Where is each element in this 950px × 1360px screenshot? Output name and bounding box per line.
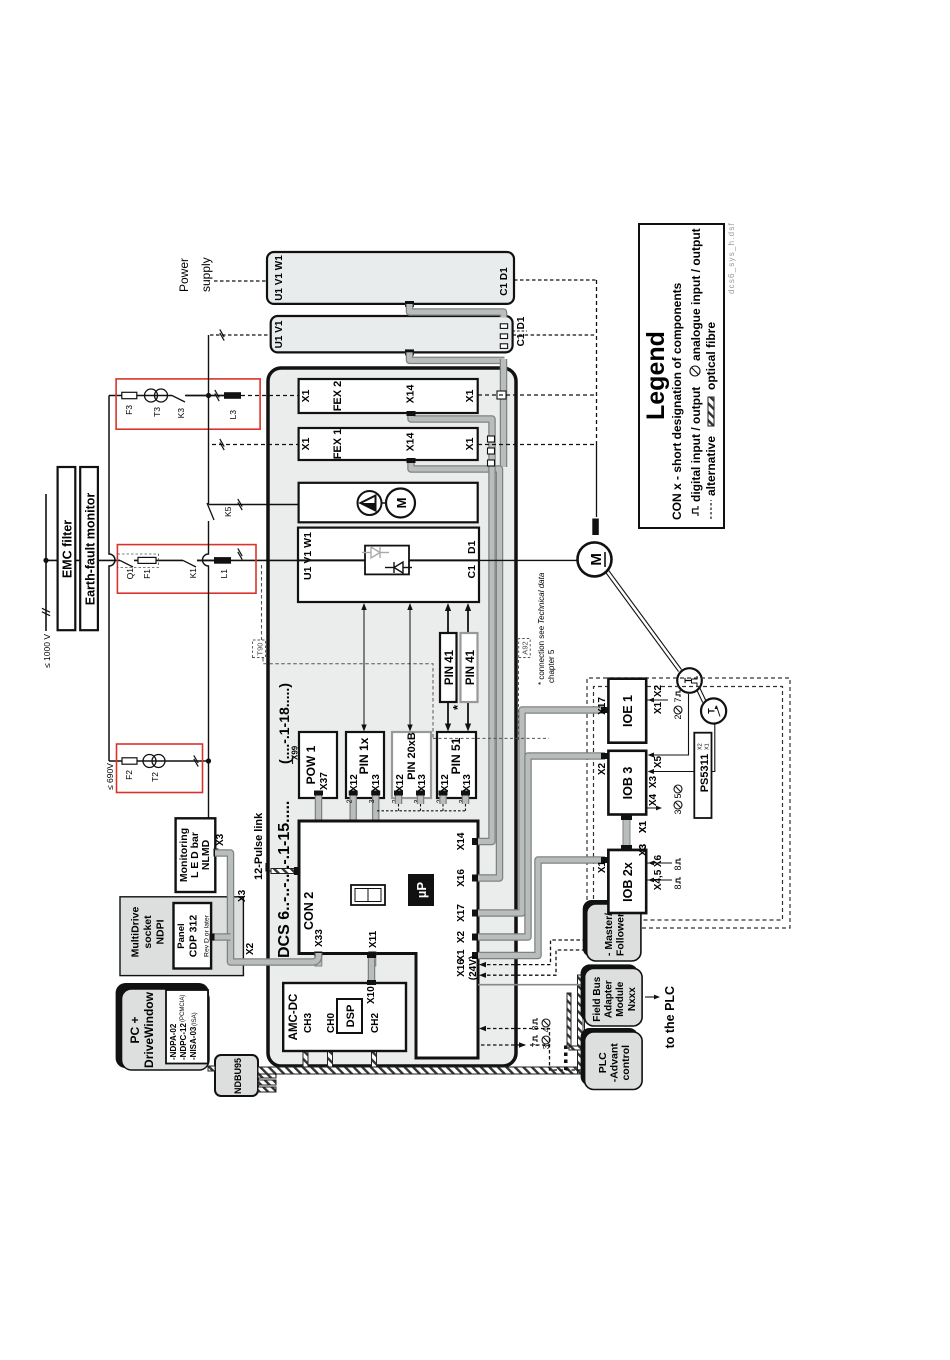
svg-text:CON x - short designation of c: CON x - short designation of components <box>670 282 684 520</box>
svg-text:T3: T3 <box>152 407 162 417</box>
svg-text:K1: K1 <box>188 568 198 579</box>
svg-text:C1: C1 <box>466 565 478 579</box>
svg-text:X13: X13 <box>417 774 428 792</box>
svg-text:≤ 1000 V: ≤ 1000 V <box>42 634 52 668</box>
svg-text:2: 2 <box>347 799 354 803</box>
svg-text:Earth-fault monitor: Earth-fault monitor <box>84 493 98 606</box>
svg-text:to the PLC: to the PLC <box>663 986 677 1049</box>
svg-text:12-Pulse link: 12-Pulse link <box>253 812 265 880</box>
svg-text:2: 2 <box>673 714 683 719</box>
svg-text:Panel: Panel <box>176 923 187 948</box>
svg-text:DCS 6..-..-....-.1-15.....: DCS 6..-..-....-.1-15..... <box>276 801 293 958</box>
svg-text:X16: X16 <box>456 959 467 977</box>
svg-text:Nxxx: Nxxx <box>627 987 638 1011</box>
svg-text:X17: X17 <box>456 904 467 922</box>
svg-text:X1: X1 <box>638 820 649 833</box>
svg-text:PIN 51: PIN 51 <box>449 737 463 774</box>
svg-text:X14: X14 <box>405 385 417 404</box>
svg-text:Adapter: Adapter <box>604 980 615 1018</box>
svg-text:CH3: CH3 <box>303 1013 314 1033</box>
svg-text:X4: X4 <box>648 793 659 806</box>
svg-text:dcs6_sys_h.dsf: dcs6_sys_h.dsf <box>727 222 736 294</box>
svg-text:X3: X3 <box>648 775 659 788</box>
svg-text:PIN 41: PIN 41 <box>444 649 456 685</box>
svg-text:X3: X3 <box>215 833 226 846</box>
svg-text:optical fibre: optical fibre <box>704 322 718 390</box>
svg-text:Technical data: Technical data <box>537 572 546 624</box>
svg-text:(ISA): (ISA) <box>192 1012 198 1026</box>
svg-text:Field Bus: Field Bus <box>592 976 603 1021</box>
svg-text:X2: X2 <box>597 762 608 775</box>
svg-text:CON 2: CON 2 <box>302 892 316 930</box>
svg-text:Legend: Legend <box>642 331 670 420</box>
svg-text:7: 7 <box>673 697 683 702</box>
svg-text:PC +: PC + <box>128 1016 142 1043</box>
svg-text:X12: X12 <box>395 774 406 792</box>
svg-text:PS5311: PS5311 <box>699 754 711 793</box>
svg-text:X2: X2 <box>456 930 467 943</box>
svg-text:X14: X14 <box>405 433 417 452</box>
svg-text:-NISA-03: -NISA-03 <box>189 1026 198 1060</box>
svg-text:8: 8 <box>673 865 683 870</box>
svg-text:3: 3 <box>369 799 376 803</box>
svg-text:(24V): (24V) <box>468 956 479 980</box>
svg-text:X2: X2 <box>245 942 256 955</box>
svg-text:3: 3 <box>673 809 683 814</box>
svg-text:U1 V1: U1 V1 <box>274 320 285 348</box>
svg-text:IOB 3: IOB 3 <box>621 767 635 800</box>
svg-text:8: 8 <box>530 1025 540 1030</box>
svg-text:X14: X14 <box>456 832 467 850</box>
svg-text:7: 7 <box>530 1042 540 1047</box>
svg-text:M: M <box>588 553 605 566</box>
svg-text:alternative: alternative <box>704 436 718 496</box>
svg-text:X1: X1 <box>464 389 476 402</box>
svg-text:X4,5: X4,5 <box>653 869 664 890</box>
svg-text:U1 V1 W1: U1 V1 W1 <box>302 532 314 580</box>
svg-text:≤ 690V: ≤ 690V <box>105 763 115 790</box>
svg-text:Rev D or later: Rev D or later <box>204 914 211 957</box>
svg-text:X1: X1 <box>597 860 608 873</box>
svg-text:-NDPC-12: -NDPC-12 <box>179 1023 188 1060</box>
svg-text:X1: X1 <box>300 437 312 450</box>
svg-text:X13: X13 <box>462 774 473 792</box>
svg-text:- Master/: - Master/ <box>603 913 615 956</box>
svg-text:U1 V1 W1: U1 V1 W1 <box>274 255 285 301</box>
svg-text:PIN 1x: PIN 1x <box>357 737 371 774</box>
svg-text:3: 3 <box>541 1044 551 1049</box>
svg-text:M: M <box>394 498 409 509</box>
svg-text:NDPI: NDPI <box>155 919 167 944</box>
svg-text:X3: X3 <box>638 843 649 856</box>
svg-text:-Advant: -Advant <box>608 1043 620 1083</box>
svg-text:CH0: CH0 <box>326 1013 337 1033</box>
svg-text:X1: X1 <box>653 701 664 714</box>
svg-text:F2: F2 <box>124 770 134 780</box>
svg-text:X2: X2 <box>698 743 704 750</box>
svg-text:supply: supply <box>199 257 213 292</box>
svg-text:X12: X12 <box>349 774 360 792</box>
svg-text:CH2: CH2 <box>370 1013 381 1033</box>
svg-text:digital input / output: digital input / output <box>689 387 703 502</box>
svg-text:X37: X37 <box>319 772 330 790</box>
svg-text:X3: X3 <box>237 889 248 902</box>
svg-text:POW 1: POW 1 <box>304 745 318 784</box>
svg-text:Q1: Q1 <box>125 568 135 580</box>
svg-text:CDP 312: CDP 312 <box>188 915 200 958</box>
svg-text:NDBU95: NDBU95 <box>233 1058 243 1094</box>
svg-text:EMC filter: EMC filter <box>61 520 75 578</box>
svg-text:AMC-DC: AMC-DC <box>288 994 300 1041</box>
svg-text:4: 4 <box>541 1027 551 1032</box>
svg-text:socket: socket <box>142 915 154 949</box>
svg-text:D1: D1 <box>466 540 478 554</box>
svg-text:L3: L3 <box>228 410 238 420</box>
svg-text:F1: F1 <box>142 569 152 579</box>
svg-text:X1: X1 <box>300 389 312 402</box>
svg-text:chapter 5: chapter 5 <box>547 649 556 683</box>
svg-text:control: control <box>620 1045 632 1081</box>
svg-text:analogue input / output: analogue input / output <box>689 228 703 361</box>
svg-text:X11: X11 <box>368 930 379 948</box>
svg-text:X5: X5 <box>653 755 664 768</box>
svg-text:(PCMCIA): (PCMCIA) <box>180 995 186 1022</box>
svg-text:X6: X6 <box>653 854 664 867</box>
svg-text:Follower: Follower <box>615 913 627 956</box>
svg-text:D1: D1 <box>516 316 527 329</box>
svg-text:IOE 1: IOE 1 <box>621 695 635 727</box>
svg-text:MultiDrive: MultiDrive <box>130 906 142 957</box>
svg-text:* connection see: * connection see <box>537 625 546 685</box>
svg-text:T2: T2 <box>150 772 160 782</box>
svg-text:PLC: PLC <box>597 1052 609 1073</box>
svg-text:-NDPA-02: -NDPA-02 <box>169 1023 178 1060</box>
svg-text:PIN 20xB: PIN 20xB <box>406 732 418 780</box>
svg-text:F3: F3 <box>124 405 134 415</box>
svg-text:8: 8 <box>673 884 683 889</box>
svg-text:A92: A92 <box>521 641 530 654</box>
svg-text:C1 D1: C1 D1 <box>499 267 510 296</box>
svg-text:NLMD: NLMD <box>200 839 212 870</box>
svg-text:X2: X2 <box>653 684 664 697</box>
svg-text:X1: X1 <box>464 437 476 450</box>
svg-text:K3: K3 <box>176 408 186 419</box>
svg-text:K5: K5 <box>223 506 233 517</box>
svg-text:IOB 2x: IOB 2x <box>621 862 635 902</box>
svg-text:µP: µP <box>414 882 429 898</box>
svg-text:PIN 41: PIN 41 <box>465 649 477 685</box>
svg-text:Power: Power <box>177 258 191 292</box>
svg-text:Module: Module <box>615 981 626 1016</box>
svg-text:X33: X33 <box>314 929 325 947</box>
svg-text:DSP: DSP <box>345 1005 357 1028</box>
svg-text:5: 5 <box>673 793 683 798</box>
svg-text:X10: X10 <box>366 986 377 1004</box>
svg-text:T90: T90 <box>256 643 265 656</box>
svg-text:X13: X13 <box>371 774 382 792</box>
svg-text:L1: L1 <box>219 569 229 579</box>
svg-text:X12: X12 <box>440 774 451 792</box>
svg-text:DriveWindow: DriveWindow <box>142 991 156 1068</box>
svg-text:FEX 2: FEX 2 <box>332 381 344 412</box>
svg-text:FEX 1: FEX 1 <box>332 429 344 460</box>
svg-text:X1: X1 <box>705 743 711 750</box>
svg-text:X16: X16 <box>456 869 467 887</box>
svg-text:X17: X17 <box>597 697 608 715</box>
